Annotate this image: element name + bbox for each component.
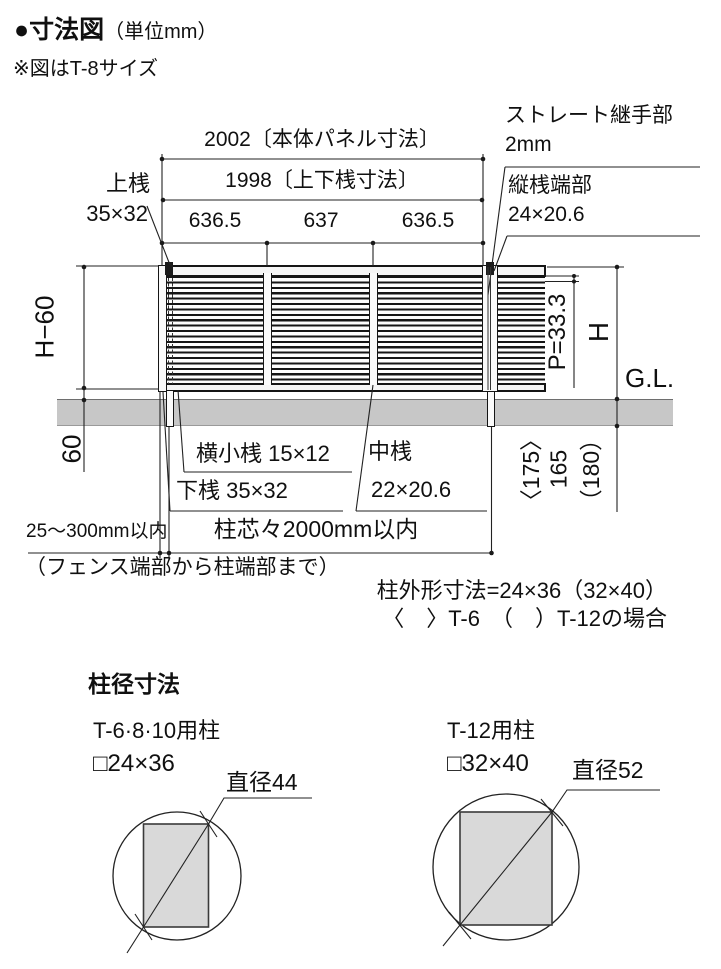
dimension-diagram: ●寸法図（単位mm） ※図はT-8サイズ 2002〔本体パネル寸法〕 1998〔…	[0, 0, 721, 969]
dim-pitch: P=33.3	[544, 294, 572, 371]
label-top-rail-size: 35×32	[86, 202, 148, 227]
label-small-rail: 横小桟 15×12	[196, 442, 330, 467]
dim-segment-right: 636.5	[402, 209, 455, 233]
dim-panel-height: H−60	[30, 296, 61, 359]
dim-ground-clearance: 60	[57, 435, 88, 464]
note-post-outer: 柱外形寸法=24×36（32×40）	[377, 579, 667, 604]
post-left-size: □24×36	[93, 751, 175, 778]
page-title-text: ●寸法図	[14, 16, 104, 44]
dim-segment-mid: 637	[303, 209, 338, 233]
unit-note: （単位mm）	[104, 21, 217, 43]
post-circle-t12	[433, 790, 660, 946]
post-right-size: □32×40	[447, 751, 529, 778]
label-middle-rail-size: 22×20.6	[371, 478, 451, 503]
post-right-diameter: 直径52	[572, 758, 644, 784]
dim-embed-t8: 165	[546, 450, 573, 488]
post-circle-t6	[113, 798, 312, 953]
dim-panel-width: 2002〔本体パネル寸法〕	[204, 128, 440, 152]
note-end-offset: （フェンス端部から柱端部まで）	[25, 556, 340, 580]
label-straight-joint: ストレート継手部	[505, 104, 673, 128]
dim-embed-t6: 〈175〉	[512, 428, 546, 512]
dim-rail-width: 1998〔上下桟寸法〕	[225, 169, 419, 193]
dim-segment-left: 636.5	[189, 209, 242, 233]
label-bottom-rail: 下桟 35×32	[176, 479, 288, 504]
hidden-lines	[169, 267, 491, 390]
label-middle-rail: 中桟	[368, 440, 412, 465]
post-right-usage: T-12用柱	[447, 719, 535, 744]
dim-post-pitch: 柱芯々2000mm以内	[214, 517, 418, 543]
label-top-rail: 上桟	[106, 172, 150, 197]
page-title: ●寸法図（単位mm）	[14, 16, 217, 44]
post-section-heading: 柱径寸法	[88, 672, 180, 698]
post-left-diameter: 直径44	[226, 770, 298, 796]
dim-embed-t12: （180）	[572, 428, 606, 512]
dim-total-height: H	[583, 322, 615, 342]
label-straight-joint-size: 2mm	[505, 133, 552, 157]
note-post-outer-cases: 〈 〉T-6 （ ）T-12の場合	[382, 607, 667, 632]
post-left-usage: T-6·8·10用柱	[93, 719, 220, 744]
dim-end-offset: 25～300mm以内	[26, 521, 168, 542]
size-note: ※図はT-8サイズ	[13, 58, 158, 80]
label-vertical-end-size: 24×20.6	[508, 203, 585, 227]
label-ground-level: G.L.	[625, 364, 674, 393]
label-vertical-end: 縦桟端部	[508, 174, 592, 198]
